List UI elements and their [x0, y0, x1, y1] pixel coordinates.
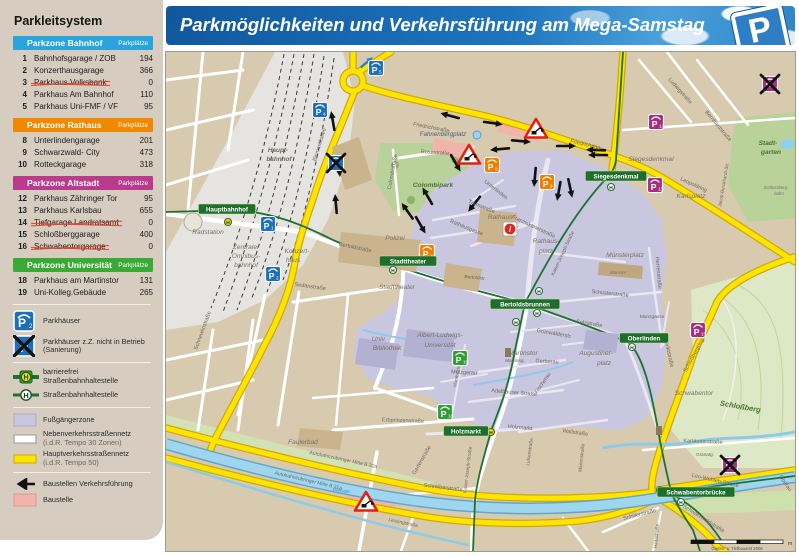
- garage-number: 1: [13, 53, 27, 65]
- legend-label: Baustelle: [43, 496, 73, 505]
- parking-zone: Parkzone BahnhofParkplätze1Bahnhofsgarag…: [13, 36, 153, 113]
- garage-number: 16: [13, 241, 27, 253]
- parking-zone: Parkzone UniversitätParkplätze18Parkhaus…: [13, 258, 153, 299]
- garage-name: Parkhaus am Martinstor: [34, 275, 129, 287]
- parking-marker-P4: P4: [313, 103, 328, 118]
- svg-text:H: H: [535, 311, 539, 317]
- tram-h-stop: H: [678, 499, 685, 506]
- svg-text:15: 15: [701, 332, 707, 337]
- svg-text:H: H: [514, 320, 518, 326]
- svg-text:Polizei: Polizei: [385, 235, 405, 242]
- garage-row: 8Unterlindengarage201: [13, 135, 153, 147]
- divider: [13, 362, 151, 363]
- svg-text:18: 18: [448, 414, 454, 419]
- legend-label: Fußgängerzone: [43, 416, 95, 425]
- parking-marker-P15: P15: [691, 323, 707, 338]
- svg-text:bahnhof: bahnhof: [266, 156, 292, 163]
- svg-text:Fahnenbergplatz: Fahnenbergplatz: [420, 131, 467, 138]
- tram-stop-label: Schwabentorbrücke: [657, 487, 735, 497]
- garage-count: 0: [129, 77, 153, 89]
- garage-number: 5: [13, 101, 27, 113]
- garage-name: Uni-Kolleg.Gebäude: [34, 287, 129, 299]
- zone-name: Parkzone Rathaus: [27, 120, 102, 130]
- garage-row: 13Parkhaus Karlsbau655: [13, 205, 153, 217]
- garage-count: 194: [129, 53, 153, 65]
- garage-row: 15Schloßberggarage400: [13, 229, 153, 241]
- svg-text:haus: haus: [286, 257, 301, 264]
- svg-text:Granatg.: Granatg.: [696, 452, 714, 457]
- garage-row: 3Parkhaus Volksbank0: [13, 77, 153, 89]
- parking-marker-P12: P12: [649, 115, 665, 130]
- parkplaetze-header: Parkplätze: [118, 262, 148, 269]
- garage-count: 265: [129, 287, 153, 299]
- svg-text:Gerberau: Gerberau: [535, 358, 559, 365]
- svg-text:Radstation: Radstation: [192, 229, 224, 236]
- svg-text:Schwabentorbrücke: Schwabentorbrücke: [666, 489, 726, 496]
- tram-stop-label: Bertoldsbrunnen: [490, 299, 560, 309]
- tram_acc-icon: H: [13, 370, 43, 384]
- platz-dot: [473, 131, 481, 139]
- legend-label: Nebenverkehrsstraßennetz(i.d.R. Tempo 30…: [43, 430, 131, 447]
- garage-count: 473: [129, 147, 153, 159]
- garage-count: 655: [129, 205, 153, 217]
- garage-number: 9: [13, 147, 27, 159]
- svg-text:Rathaus-: Rathaus-: [533, 238, 561, 245]
- svg-text:platz: platz: [596, 360, 612, 367]
- legend-item: Baustelle: [13, 493, 153, 507]
- garage-row: 16Schwabentorgarage0: [13, 241, 153, 253]
- garage-name: Parkhaus Am Bahnhof: [34, 89, 129, 101]
- page: { "header": { "title": "Parkmöglichkeite…: [0, 0, 799, 556]
- svg-text:P: P: [316, 107, 322, 117]
- construction-icon: [13, 493, 43, 507]
- garage-count: 400: [129, 229, 153, 241]
- svg-text:P: P: [456, 355, 462, 365]
- svg-text:4: 4: [323, 112, 326, 117]
- svg-text:Zentraler: Zentraler: [232, 244, 260, 251]
- tram-h-stop: H: [513, 319, 520, 326]
- arrow-icon: [13, 478, 43, 490]
- legend-item: HStraßenbahnhaltestelle: [13, 388, 153, 402]
- parking-marker-P18: P18: [438, 405, 454, 420]
- parking-marker-P8: P8: [485, 158, 500, 173]
- svg-text:Omnibus-: Omnibus-: [232, 253, 261, 260]
- svg-text:P: P: [372, 65, 378, 75]
- svg-text:platz: platz: [538, 248, 554, 255]
- svg-text:H: H: [391, 268, 395, 274]
- svg-text:bahn: bahn: [774, 191, 784, 196]
- svg-text:Stadttheater: Stadttheater: [390, 258, 427, 265]
- page-title: Parkmöglichkeiten und Verkehrsführung am…: [180, 14, 705, 36]
- garage-row: 4Parkhaus Am Bahnhof110: [13, 89, 153, 101]
- garage-row: 2Konzerthausgarage366: [13, 65, 153, 77]
- legend-label: Baustellen Verkehrsführung: [43, 480, 133, 489]
- garage-row: 19Uni-Kolleg.Gebäude265: [13, 287, 153, 299]
- garage-count: 95: [129, 193, 153, 205]
- garage-row: 9Schwarzwald- City473: [13, 147, 153, 159]
- tram-stop-label: Stadttheater: [379, 256, 436, 266]
- svg-text:Stadttheater: Stadttheater: [379, 284, 416, 291]
- legend-item: Hauptverkehrsstraßennetz(i.d.R. Tempo 50…: [13, 450, 153, 467]
- parking-marker-P13: P13: [648, 178, 664, 193]
- tram-h-stop: H: [225, 219, 232, 226]
- garage-name: Parkhaus Volksbank: [34, 77, 129, 89]
- legend-label: barrierefrei Straßenbahnhaltestelle: [43, 368, 153, 385]
- zone-name: Parkzone Altstadt: [27, 178, 99, 188]
- svg-text:Bertoldsbrunnen: Bertoldsbrunnen: [500, 301, 550, 308]
- tram-stop-label: Oberlinden: [620, 333, 669, 343]
- svg-text:19: 19: [463, 360, 469, 365]
- svg-text:Martinsg.: Martinsg.: [505, 358, 525, 364]
- garage-name: Konzerthausgarage: [34, 65, 129, 77]
- garage-name: Unterlindengarage: [34, 135, 129, 147]
- svg-text:Oberlinden: Oberlinden: [628, 335, 661, 342]
- garage-number: 18: [13, 275, 27, 287]
- garage-count: 201: [129, 135, 153, 147]
- svg-text:Schlossberg-: Schlossberg-: [763, 185, 789, 190]
- city-map: FriedrichstraßeFriedrichringLeopoldringB…: [166, 52, 795, 551]
- svg-text:Haupt-: Haupt-: [268, 147, 288, 154]
- ped-icon: [13, 413, 43, 427]
- legend-label: Straßenbahnhaltestelle: [43, 391, 118, 400]
- garage-row: 1Bahnhofsgarage / ZOB194: [13, 53, 153, 65]
- tram-icon: H: [13, 388, 43, 402]
- legend-label: Parkhäuser z.Z. nicht in Betrieb (Sanier…: [43, 338, 153, 355]
- parkplaetze-header: Parkplätze: [118, 122, 148, 129]
- divider: [13, 304, 151, 305]
- garage-number: 4: [13, 89, 27, 101]
- legend-item: Nebenverkehrsstraßennetz(i.d.R. Tempo 30…: [13, 430, 153, 447]
- svg-text:P: P: [543, 179, 549, 189]
- tram-stop-label: Holzmarkt: [444, 426, 489, 436]
- garage-number: 13: [13, 205, 27, 217]
- garage-count: 95: [129, 101, 153, 113]
- svg-text:garten: garten: [760, 149, 781, 156]
- minor-icon: [13, 433, 43, 445]
- parkhaus_closed-icon: P: [13, 335, 43, 357]
- map-credit: Garten- u. Tiefbauamt 2008: [711, 546, 763, 551]
- garage-number: 15: [13, 229, 27, 241]
- garage-name: Parkhaus Karlsbau: [34, 205, 129, 217]
- garage-name: Schwarzwald- City: [34, 147, 129, 159]
- parking-marker-P3: P3: [327, 154, 345, 172]
- svg-text:Univ.: Univ.: [372, 336, 387, 343]
- tram-h-stop: H: [390, 267, 397, 274]
- garage-name: Rotteckgarage: [34, 159, 129, 171]
- svg-text:H: H: [489, 430, 493, 436]
- tram-h-stop: H: [536, 288, 543, 295]
- garage-name: Schwabentorgarage: [34, 241, 129, 253]
- garage-row: 12Parkhaus Zähringer Tor95: [13, 193, 153, 205]
- svg-text:Augustiner-: Augustiner-: [578, 350, 613, 357]
- svg-text:13: 13: [658, 187, 664, 192]
- legend-item: P2Parkhäuser: [13, 310, 153, 332]
- svg-text:Münsterplatz: Münsterplatz: [606, 252, 644, 259]
- garage-row: 5Parkhaus Uni-FMF / VF95: [13, 101, 153, 113]
- divider: [13, 407, 151, 408]
- svg-text:H: H: [23, 374, 28, 381]
- svg-text:5: 5: [379, 70, 382, 75]
- zone-name: Parkzone Bahnhof: [27, 38, 102, 48]
- svg-text:1: 1: [271, 226, 274, 231]
- garage-number: 2: [13, 65, 27, 77]
- parking-marker-P2: P2: [266, 267, 281, 282]
- parking-zone-list: Parkzone BahnhofParkplätze1Bahnhofsgarag…: [13, 36, 153, 299]
- garage-number: 14: [13, 217, 27, 229]
- svg-text:Colombipark: Colombipark: [413, 182, 454, 189]
- garage-count: 0: [129, 241, 153, 253]
- svg-text:P: P: [18, 316, 26, 330]
- svg-text:Holzmarkt: Holzmarkt: [451, 428, 481, 435]
- parking-marker-P1: P1: [261, 217, 276, 232]
- tram-stop-label: Siegesdenkmal: [585, 171, 646, 181]
- title-bar: Parkmöglichkeiten und Verkehrsführung am…: [166, 6, 795, 45]
- svg-text:P: P: [694, 327, 700, 337]
- garage-name: Parkhaus Uni-FMF / VF: [34, 101, 129, 113]
- svg-text:H: H: [226, 220, 230, 226]
- garage-count: 131: [129, 275, 153, 287]
- legend-label: Parkhäuser: [43, 317, 80, 326]
- parkhaus-icon: P2: [13, 310, 43, 332]
- svg-text:Bibliothek: Bibliothek: [373, 345, 402, 352]
- parkplaetze-header: Parkplätze: [118, 40, 148, 47]
- svg-text:Karlsplatz: Karlsplatz: [677, 193, 707, 200]
- svg-text:Münzgasse: Münzgasse: [640, 314, 665, 320]
- svg-text:P: P: [269, 271, 275, 281]
- svg-text:Siegesdenkmal: Siegesdenkmal: [593, 173, 638, 180]
- garage-row: 18Parkhaus am Martinstor131: [13, 275, 153, 287]
- garage-count: 110: [129, 89, 153, 101]
- panel-title: Parkleitsystem: [14, 14, 153, 28]
- legend-item: Fußgängerzone: [13, 413, 153, 427]
- tram-stop-label: Hauptbahnhof: [198, 204, 255, 214]
- zone-name: Parkzone Universität: [27, 260, 112, 270]
- parking-marker-P14: P14: [761, 75, 779, 93]
- legend-label: Hauptverkehrsstraßennetz(i.d.R. Tempo 50…: [43, 450, 129, 467]
- svg-text:P: P: [652, 119, 658, 129]
- parkhaus-logo: P: [737, 8, 789, 45]
- garage-count: 0: [129, 217, 153, 229]
- svg-text:Stadt-: Stadt-: [759, 140, 778, 147]
- svg-text:P: P: [651, 182, 657, 192]
- svg-text:P: P: [441, 409, 447, 419]
- parking-marker-P9: P9: [540, 175, 555, 190]
- svg-text:P: P: [264, 221, 270, 231]
- svg-text:Münster: Münster: [610, 270, 627, 275]
- garage-number: 8: [13, 135, 27, 147]
- legend-item: Hbarrierefrei Straßenbahnhaltestelle: [13, 368, 153, 385]
- garage-name: Bahnhofsgarage / ZOB: [34, 53, 129, 65]
- garage-name: Schloßberggarage: [34, 229, 129, 241]
- garage-number: 3: [13, 77, 27, 89]
- info-icon: i: [503, 222, 517, 236]
- tram-h-stop: H: [629, 344, 636, 351]
- svg-text:Hauptbahnhof: Hauptbahnhof: [206, 206, 249, 213]
- map-canvas: FriedrichstraßeFriedrichringLeopoldringB…: [166, 52, 795, 551]
- svg-text:Martinstor: Martinstor: [508, 350, 538, 357]
- svg-text:m: m: [788, 541, 792, 547]
- svg-text:8: 8: [495, 167, 498, 172]
- parkhaus-logo-letter: P: [745, 10, 775, 45]
- svg-text:H: H: [537, 289, 541, 295]
- garage-number: 10: [13, 159, 27, 171]
- divider: [13, 472, 151, 473]
- major-icon: [13, 453, 43, 465]
- parking-marker-P16: P16: [721, 456, 739, 474]
- svg-text:Universität: Universität: [424, 342, 456, 349]
- parking-zone: Parkzone AltstadtParkplätze12Parkhaus Zä…: [13, 176, 153, 253]
- garage-count: 366: [129, 65, 153, 77]
- garage-number: 12: [13, 193, 27, 205]
- svg-text:12: 12: [659, 124, 665, 129]
- svg-text:9: 9: [550, 184, 553, 189]
- garage-row: 14Tiefgarage Landratsamt0: [13, 217, 153, 229]
- garage-name: Tiefgarage Landratsamt: [34, 217, 129, 229]
- garage-row: 10Rotteckgarage318: [13, 159, 153, 171]
- svg-text:H: H: [630, 345, 634, 351]
- svg-text:Rathaus: Rathaus: [488, 214, 513, 221]
- tram-h-stop: H: [534, 310, 541, 317]
- svg-text:Siegesdenkmal: Siegesdenkmal: [628, 156, 674, 163]
- svg-text:Konzert-: Konzert-: [285, 248, 311, 255]
- svg-text:H: H: [23, 391, 28, 400]
- parkleitsystem-panel: Parkleitsystem Parkzone BahnhofParkplätz…: [0, 0, 163, 540]
- svg-text:P: P: [488, 162, 494, 172]
- svg-text:Schwabentor: Schwabentor: [675, 390, 714, 397]
- garage-name: Parkhaus Zähringer Tor: [34, 193, 129, 205]
- garage-count: 318: [129, 159, 153, 171]
- parking-marker-P19: P19: [453, 351, 469, 366]
- parking-marker-P5: P5: [369, 61, 384, 76]
- svg-text:H: H: [679, 500, 683, 506]
- tram-h-stop: H: [608, 184, 615, 191]
- svg-text:2: 2: [276, 276, 279, 281]
- map-legend: P2ParkhäuserPParkhäuser z.Z. nicht in Be…: [13, 310, 153, 507]
- svg-text:H: H: [609, 185, 613, 191]
- legend-item: PParkhäuser z.Z. nicht in Betrieb (Sanie…: [13, 335, 153, 357]
- parkplaetze-header: Parkplätze: [118, 180, 148, 187]
- svg-text:bahnhof: bahnhof: [234, 262, 259, 269]
- garage-number: 19: [13, 287, 27, 299]
- svg-text:Faulerbad: Faulerbad: [288, 439, 318, 446]
- svg-text:Albert-Ludwigs-: Albert-Ludwigs-: [416, 332, 464, 339]
- parking-zone: Parkzone RathausParkplätze8Unterlindenga…: [13, 118, 153, 171]
- legend-item: Baustellen Verkehrsführung: [13, 478, 153, 490]
